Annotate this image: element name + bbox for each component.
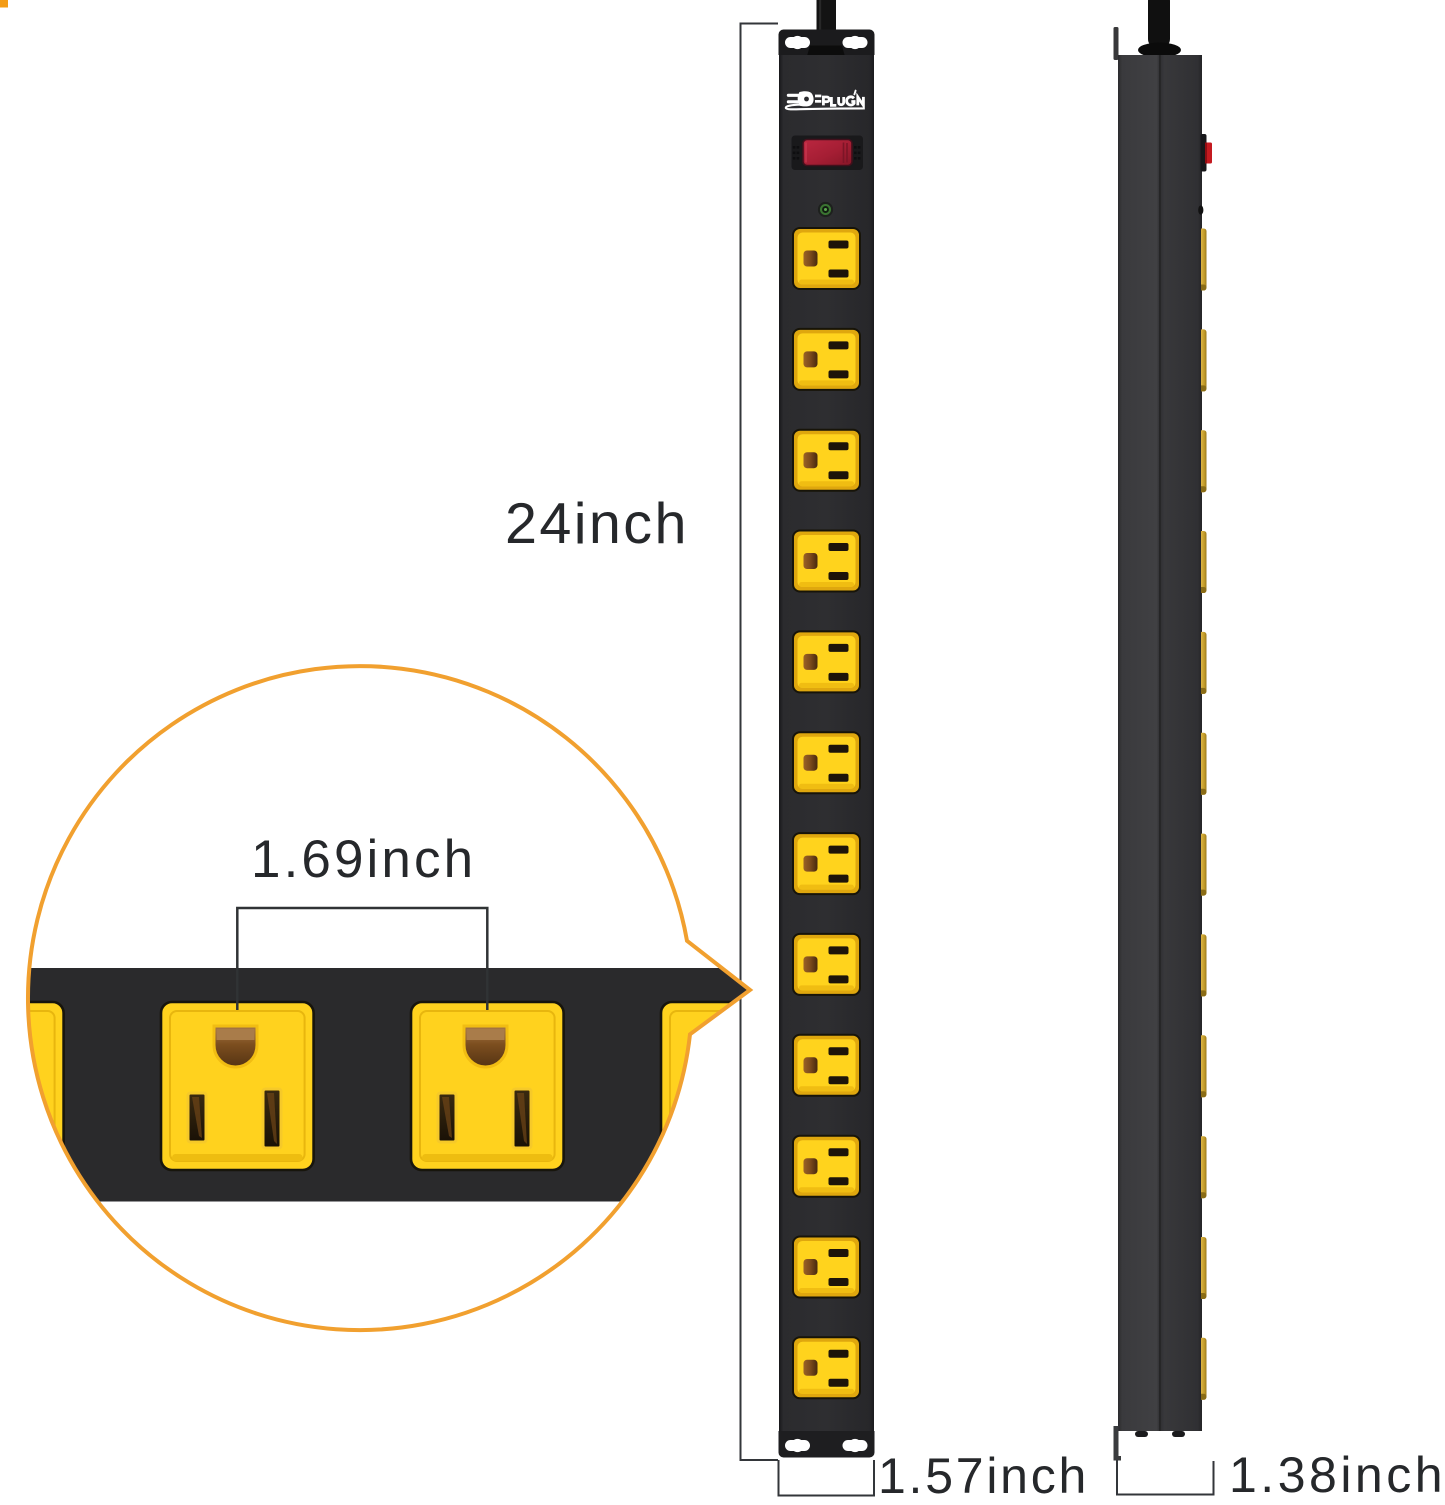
svg-text:1.57inch: 1.57inch	[878, 1448, 1089, 1500]
svg-text:24inch: 24inch	[505, 492, 689, 556]
svg-text:1.69inch: 1.69inch	[251, 830, 476, 889]
svg-text:1.38inch: 1.38inch	[1229, 1447, 1445, 1500]
